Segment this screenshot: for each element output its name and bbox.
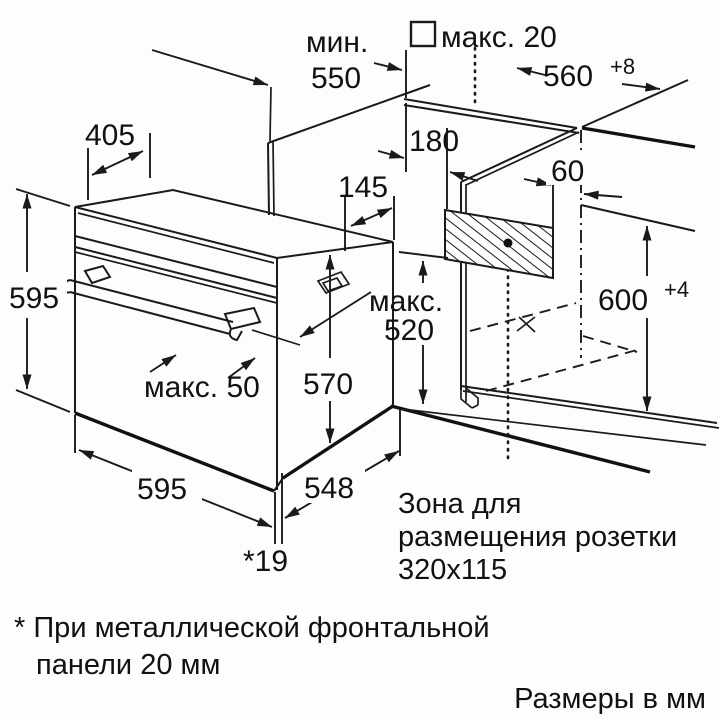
right-wall-top-edge <box>582 128 695 147</box>
footnote-line1: * При металлической фронтальной <box>14 612 490 644</box>
plinth-edge-1 <box>461 386 717 423</box>
min-depth-extension <box>270 87 271 141</box>
dim-520-value-label: 520 <box>384 314 434 347</box>
dim-min550-left <box>152 50 268 85</box>
handle-bar <box>64 280 233 334</box>
right-wall-lower-edge <box>581 205 695 231</box>
door-handle <box>64 266 260 340</box>
handle-left-cap <box>85 266 110 283</box>
side-vent <box>318 272 349 293</box>
dim-595-left-label: 595 <box>9 282 59 315</box>
dim-19-label: *19 <box>243 545 288 578</box>
dim-560-tolerance-label: +8 <box>610 54 635 79</box>
dim-560-right <box>622 84 660 89</box>
dim-548-label: 548 <box>304 472 354 505</box>
control-panel-bottom <box>75 247 277 298</box>
dim-max50-leader-3 <box>300 292 371 337</box>
dim-560-label: 560 <box>543 60 593 93</box>
dim-595-bottom-label: 595 <box>137 473 187 506</box>
niche-bottom-cross <box>517 317 535 332</box>
dim-min550-value-label: 550 <box>311 62 361 95</box>
dim-60-label: 60 <box>551 155 584 188</box>
dimension-lines <box>16 22 660 544</box>
dim-145-label: 145 <box>338 171 388 204</box>
dim-600-label: 600 <box>598 284 648 317</box>
square-symbol <box>411 22 435 46</box>
socket-point <box>504 239 513 248</box>
dim-min550-prefix-label: мин. <box>306 26 368 59</box>
niche-bottom-dash-2 <box>486 350 637 391</box>
base-front-edge <box>391 406 650 472</box>
dim-405-label: 405 <box>85 119 135 152</box>
dim-max20-label: макс. 20 <box>441 21 557 54</box>
ext-595L-bottom <box>16 390 70 412</box>
oven-body-bottom-edge <box>283 406 393 478</box>
worktop-front-edge <box>404 99 577 128</box>
niche-width-edge <box>582 80 688 127</box>
installation-diagram: мин. 550 макс. 20 560 +8 405 180 145 60 … <box>0 0 720 720</box>
socket-zone-label-line3: 320x115 <box>398 554 507 586</box>
vent-inner <box>323 278 342 291</box>
dim-145 <box>351 208 392 226</box>
dim-180-arrow-left <box>378 151 404 158</box>
dim-570-label: 570 <box>303 368 353 401</box>
oven <box>64 190 393 491</box>
left-wall-front-edge <box>268 143 269 215</box>
dim-60-arrow-right <box>584 194 622 197</box>
diagram-canvas: мин. 550 макс. 20 560 +8 405 180 145 60 … <box>0 0 720 720</box>
handle-right-cap <box>225 308 260 340</box>
dim-405 <box>92 151 143 175</box>
dim-560-left <box>517 68 545 75</box>
dim-600-tolerance-label: +4 <box>664 277 689 302</box>
socket-zone-label-line2: размещения розетки <box>398 521 677 553</box>
dim-max50-leader-1 <box>150 355 176 372</box>
units-label: Размеры в мм <box>514 683 706 715</box>
left-wall-front-edge-2 <box>273 141 274 216</box>
dim-min550-right <box>374 63 402 70</box>
dim-180-label: 180 <box>409 125 459 158</box>
niche-bottom-dash-3 <box>583 336 637 352</box>
plinth-edge-2 <box>463 391 719 428</box>
ext-520-top <box>399 252 448 258</box>
ext-595L-top <box>16 189 70 206</box>
footnote-line2: панели 20 мм <box>36 649 220 681</box>
socket-zone-label-line1: Зона для <box>398 488 521 520</box>
dim-max50-label: макс. 50 <box>144 371 260 404</box>
control-panel-bottom-2 <box>75 252 277 303</box>
